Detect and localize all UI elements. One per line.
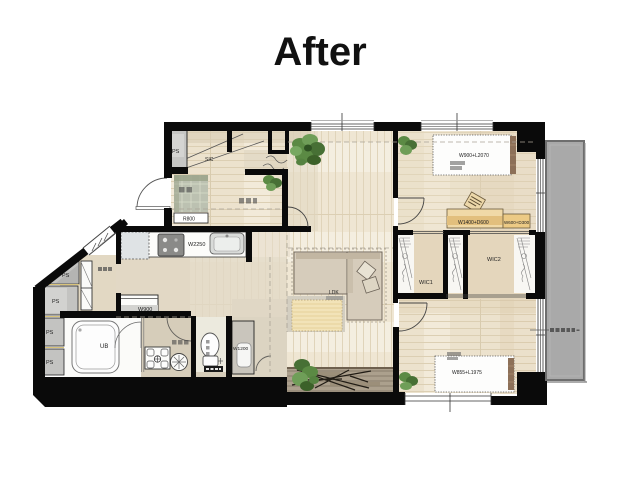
svg-text:PS: PS (46, 360, 54, 366)
svg-text:PS: PS (52, 299, 60, 305)
svg-text:PS: PS (62, 273, 70, 279)
svg-text:PS: PS (172, 149, 180, 155)
svg-text:WIC1: WIC1 (419, 280, 433, 286)
svg-text:SIC: SIC (205, 157, 214, 163)
svg-text:WIC2: WIC2 (487, 257, 501, 263)
svg-text:W1400+D600: W1400+D600 (458, 220, 489, 226)
svg-text:R800: R800 (183, 217, 195, 223)
svg-text:UB: UB (100, 344, 108, 350)
svg-text:LDK: LDK (329, 290, 339, 296)
svg-text:W1200: W1200 (233, 346, 249, 352)
svg-text:W2250: W2250 (188, 242, 205, 248)
svg-text:W900+L2070: W900+L2070 (459, 153, 489, 159)
svg-text:W855+L1975: W855+L1975 (452, 370, 482, 376)
svg-text:PS: PS (46, 330, 54, 336)
svg-text:W600+D300: W600+D300 (504, 220, 530, 225)
